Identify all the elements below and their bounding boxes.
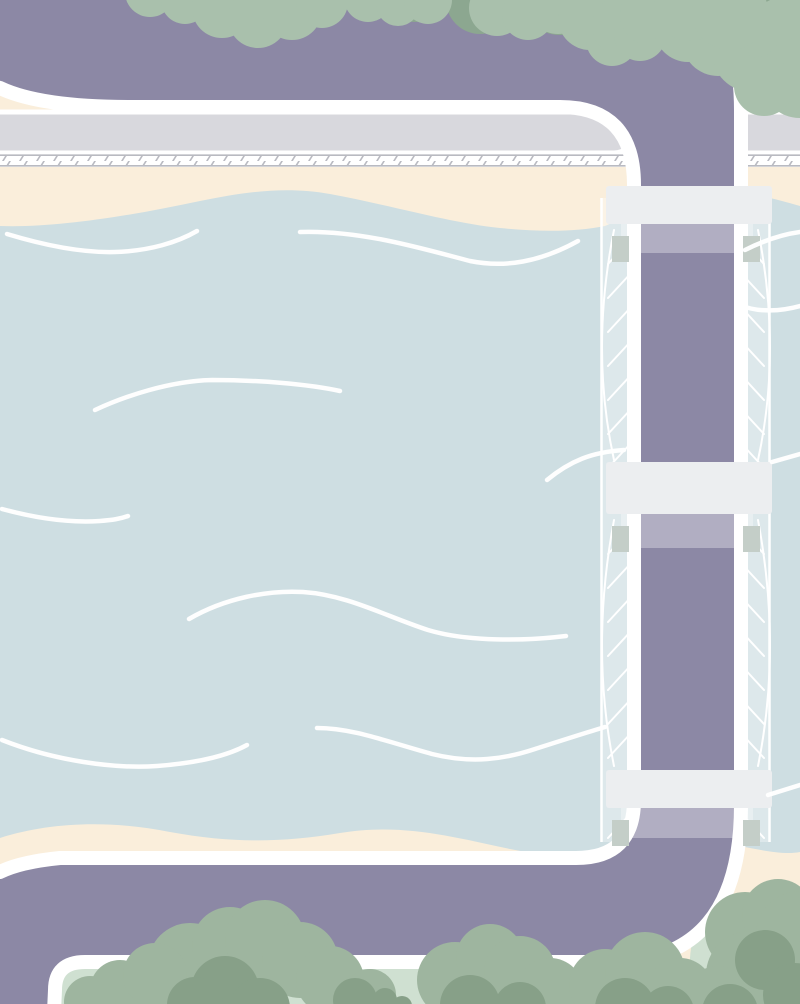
bridge-pylon-top	[606, 186, 772, 224]
map-canvas[interactable]	[0, 0, 800, 1004]
pylon-foot-bottom-left	[612, 820, 629, 846]
deck-shadow-middle	[621, 514, 753, 548]
pylon-foot-mid-right	[743, 526, 760, 552]
pylon-foot-bottom-right	[743, 820, 760, 846]
deck-shadow-bottom	[621, 808, 753, 838]
bridge-pylon-middle	[606, 462, 772, 514]
bridge-pylon-bottom	[606, 770, 772, 808]
pylon-foot-mid-left	[612, 526, 629, 552]
gray-road-left-segment	[0, 112, 634, 153]
river-map-illustration	[0, 0, 800, 1004]
pylon-foot-top-left	[612, 236, 629, 262]
deck-shadow-top	[621, 224, 753, 253]
